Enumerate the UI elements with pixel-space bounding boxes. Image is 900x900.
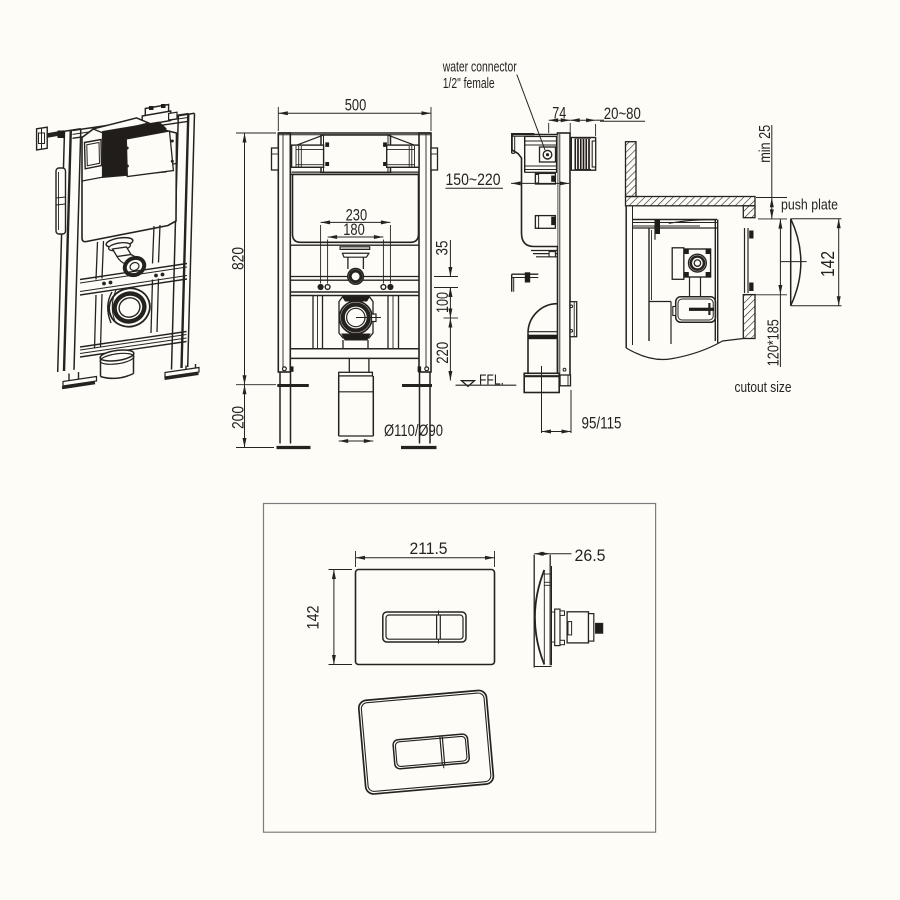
svg-text:Ø110/Ø90: Ø110/Ø90: [384, 422, 443, 440]
svg-text:water connector: water connector: [442, 60, 517, 76]
svg-text:142: 142: [818, 251, 838, 277]
svg-text:180: 180: [343, 221, 365, 239]
svg-text:26.5: 26.5: [575, 547, 606, 565]
svg-text:500: 500: [345, 97, 367, 115]
svg-text:150~220: 150~220: [446, 171, 501, 189]
svg-text:35: 35: [434, 241, 452, 256]
svg-text:95/115: 95/115: [582, 415, 622, 433]
svg-text:211.5: 211.5: [410, 540, 448, 558]
svg-text:142: 142: [305, 606, 323, 630]
svg-text:cutout size: cutout size: [735, 379, 792, 396]
svg-text:min 25: min 25: [757, 125, 774, 163]
svg-text:FFL.: FFL.: [479, 372, 504, 389]
svg-text:push plate: push plate: [781, 197, 838, 214]
svg-text:220: 220: [434, 342, 452, 364]
svg-text:1/2" female: 1/2" female: [443, 76, 495, 92]
svg-text:20~80: 20~80: [604, 105, 641, 123]
